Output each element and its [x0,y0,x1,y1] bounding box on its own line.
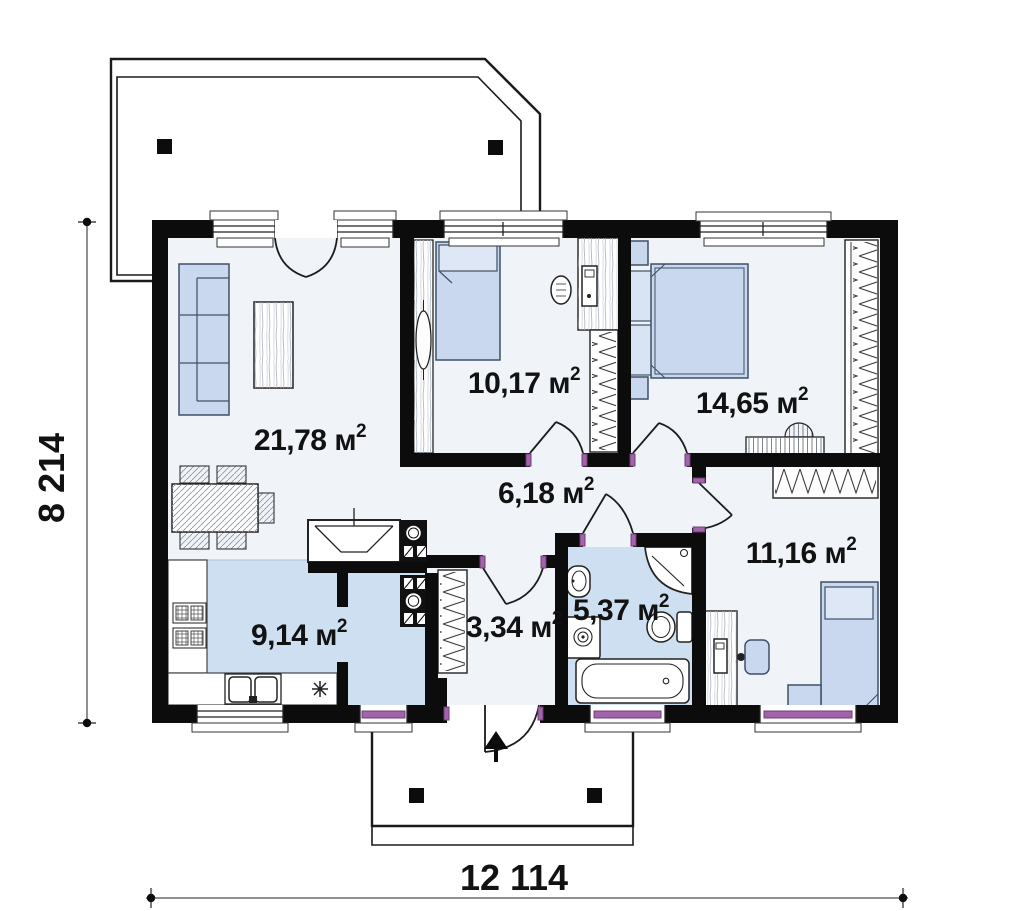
room-label-bedroom1: 10,17 м2 [468,364,580,400]
window [355,705,412,732]
room-area-value: 3,34 м [466,611,552,644]
toilet-tank [677,612,692,642]
monitor [582,266,597,306]
pillow [825,587,873,619]
room-area-sup: 2 [659,591,669,612]
room-label-hall: 6,18 м2 [498,474,594,510]
room-label-living: 21,78 м2 [254,421,366,457]
room-area-sup: 2 [846,534,856,555]
room-label-vestibule: 3,34 м2 [466,608,562,644]
wardrobe [845,240,878,455]
window [585,705,670,732]
room-area-value: 14,65 м [696,387,798,420]
nightstand [788,685,821,706]
room-area-value: 6,18 м [498,477,584,510]
window [696,212,831,246]
mirror [416,311,431,369]
kitchen-sink [225,674,281,704]
wall-living-bedroom1 [400,238,414,467]
floor-plan-drawing: 8 214 12 114 21,78 м2 10,17 м2 14,65 м2 … [0,0,1024,911]
room-area-value: 10,17 м [468,367,570,400]
bathtub [576,659,689,703]
room-area-sup: 2 [570,364,580,385]
terrace-post [488,140,503,155]
coffee-table [254,302,293,388]
bed-single [436,242,500,360]
window [755,705,861,732]
porch-post [587,788,602,803]
sofa [179,264,229,415]
room-area-sup: 2 [356,421,366,442]
window [192,705,288,732]
room-label-kitchen: 9,14 м2 [251,616,347,652]
chair [217,532,246,549]
room-area-sup: 2 [798,384,808,405]
wall-fireplace [308,562,427,573]
clothes-rail [773,466,878,498]
wardrobe-mirror [414,240,433,453]
pillow [628,325,652,375]
window [440,211,567,246]
chair [258,493,274,523]
window-sill-accent [764,711,852,718]
window-sill-accent [362,711,405,718]
office-chair [745,640,769,674]
wardrobe [438,570,467,673]
chair [217,466,246,483]
dim-label-width: 12 114 [460,857,568,898]
room-label-bedroom2: 14,65 м2 [696,384,808,420]
room-area-sup: 2 [337,616,347,637]
hob-symbol [312,681,328,697]
room-label-bathroom: 5,37 м2 [573,591,669,627]
pillow [628,271,652,321]
room-area-value: 5,37 м [573,594,659,627]
floor-plan-canvas: 8 214 12 114 21,78 м2 10,17 м2 14,65 м2 … [0,0,1024,911]
room-area-sup: 2 [584,474,594,495]
wall-bedroom1-bedroom2 [618,238,631,457]
terrace-post [157,139,172,154]
room-area-value: 11,16 м [746,537,846,570]
window-sill-accent [594,711,661,718]
stove [400,575,427,627]
wardrobe [590,330,618,452]
room-area-sup: 2 [552,608,562,629]
room-area-value: 21,78 м [254,424,356,457]
bathroom-sink [567,566,590,597]
chair [180,466,209,483]
porch-post [409,788,424,803]
window [210,211,278,247]
room-label-bedroom3: 11,16 м2 [746,534,857,570]
dim-label-height: 8 214 [31,433,72,523]
chair [180,532,209,549]
room-area-value: 9,14 м [251,619,337,652]
bed-double [624,241,748,399]
window [334,211,396,247]
stove [400,520,427,562]
